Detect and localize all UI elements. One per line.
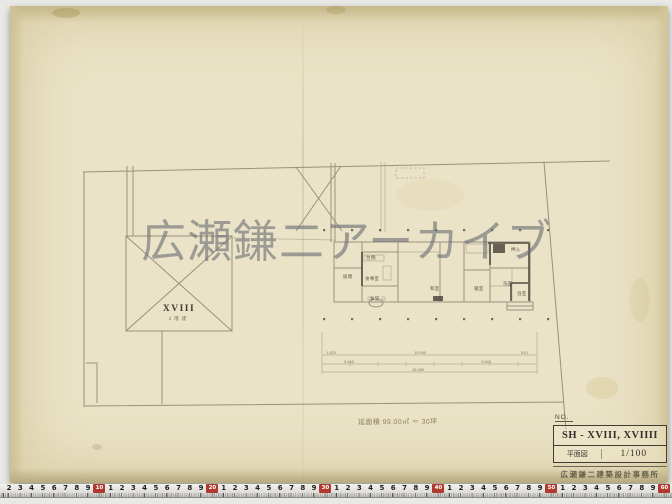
ruler-number: 2	[3, 484, 15, 492]
site-square-sublabel: 2階建	[126, 316, 232, 322]
ruler-decade-marker: 30	[319, 484, 331, 493]
sheet-no-label: NO.	[555, 414, 573, 422]
ruler-number: 6	[387, 484, 399, 492]
site-square-label: XVIII	[126, 304, 232, 314]
ruler-number: 6	[48, 484, 60, 492]
ruler-number: 4	[139, 484, 151, 492]
ruler-number: 7	[60, 484, 72, 492]
ruler-number: 7	[512, 484, 524, 492]
ruler-number: 2	[455, 484, 467, 492]
ruler-number: 2	[342, 484, 354, 492]
ruler-number: 5	[263, 484, 275, 492]
ruler-number: 8	[523, 484, 535, 492]
ruler-number: 4	[252, 484, 264, 492]
archive-scan-scene: 広瀬鎌二アーカイブ XVIII 2階建 延面積 99.00㎡ ＝ 30坪 台所居…	[0, 0, 672, 504]
ruler-number: 5	[150, 484, 162, 492]
ruler-number: 2	[229, 484, 241, 492]
ruler-number: 8	[636, 484, 648, 492]
ruler-number: 3	[240, 484, 252, 492]
ruler-number: 1	[218, 484, 230, 492]
ruler-number: 6	[274, 484, 286, 492]
ruler-number: 4	[365, 484, 377, 492]
drawing-type-label: 平面図	[554, 449, 602, 459]
ruler-number: 2	[116, 484, 128, 492]
ruler-ticks	[0, 493, 672, 498]
ruler-number: 5	[37, 484, 49, 492]
ruler-number: 9	[647, 484, 659, 492]
ruler-number: 1	[444, 484, 456, 492]
ruler-number: 7	[625, 484, 637, 492]
ruler-number: 3	[579, 484, 591, 492]
ruler-number: 7	[399, 484, 411, 492]
title-block-box: SH - XVIII, XVIIII 平面図 1/100	[553, 425, 667, 463]
area-note: 延面積 99.00㎡ ＝ 30坪	[358, 417, 438, 428]
scale-label: 1/100	[602, 449, 666, 459]
ruler-decade-marker: 40	[432, 484, 444, 493]
ruler-number: 9	[308, 484, 320, 492]
ruler-number: 8	[71, 484, 83, 492]
ruler-decade-marker: 20	[206, 484, 218, 493]
ruler-number: 6	[613, 484, 625, 492]
ruler-number: 1	[557, 484, 569, 492]
ruler-number: 2	[568, 484, 580, 492]
watermark-text: 広瀬鎌二アーカイブ	[141, 219, 552, 264]
ruler-decade-marker: 10	[93, 484, 105, 493]
ruler-number: 4	[26, 484, 38, 492]
ruler-number: 1	[331, 484, 343, 492]
main-pencil-lines	[83, 161, 610, 430]
ruler-number: 7	[286, 484, 298, 492]
ruler-number: 5	[489, 484, 501, 492]
ruler-number: 5	[602, 484, 614, 492]
ruler-number: 3	[353, 484, 365, 492]
ruler-number: 6	[500, 484, 512, 492]
ruler-number: 5	[376, 484, 388, 492]
title-block: NO. SH - XVIII, XVIIII 平面図 1/100 広瀬鎌二建築設…	[553, 406, 667, 480]
ruler-number: 9	[82, 484, 94, 492]
ruler-number: 3	[127, 484, 139, 492]
ruler-number: 4	[591, 484, 603, 492]
ruler-number: 6	[161, 484, 173, 492]
ruler-number: 1	[105, 484, 117, 492]
ruler-decade-marker: 60	[658, 484, 670, 493]
photo-scale-ruler: 2345678910123456789201234567893012345678…	[0, 484, 672, 498]
ruler-number: 9	[195, 484, 207, 492]
ruler-number: 4	[478, 484, 490, 492]
ruler-number: 9	[421, 484, 433, 492]
office-stamp: 広瀬鎌二建築設計事務所	[553, 466, 667, 480]
title-block-title: SH - XVIII, XVIIII	[554, 426, 666, 446]
ruler-number: 8	[410, 484, 422, 492]
ruler-number: 3	[14, 484, 26, 492]
ruler-number: 3	[466, 484, 478, 492]
ruler-number: 8	[184, 484, 196, 492]
ruler-number: 8	[297, 484, 309, 492]
ruler-number: 9	[534, 484, 546, 492]
ruler-decade-marker: 50	[545, 484, 557, 493]
ruler-number: 7	[173, 484, 185, 492]
